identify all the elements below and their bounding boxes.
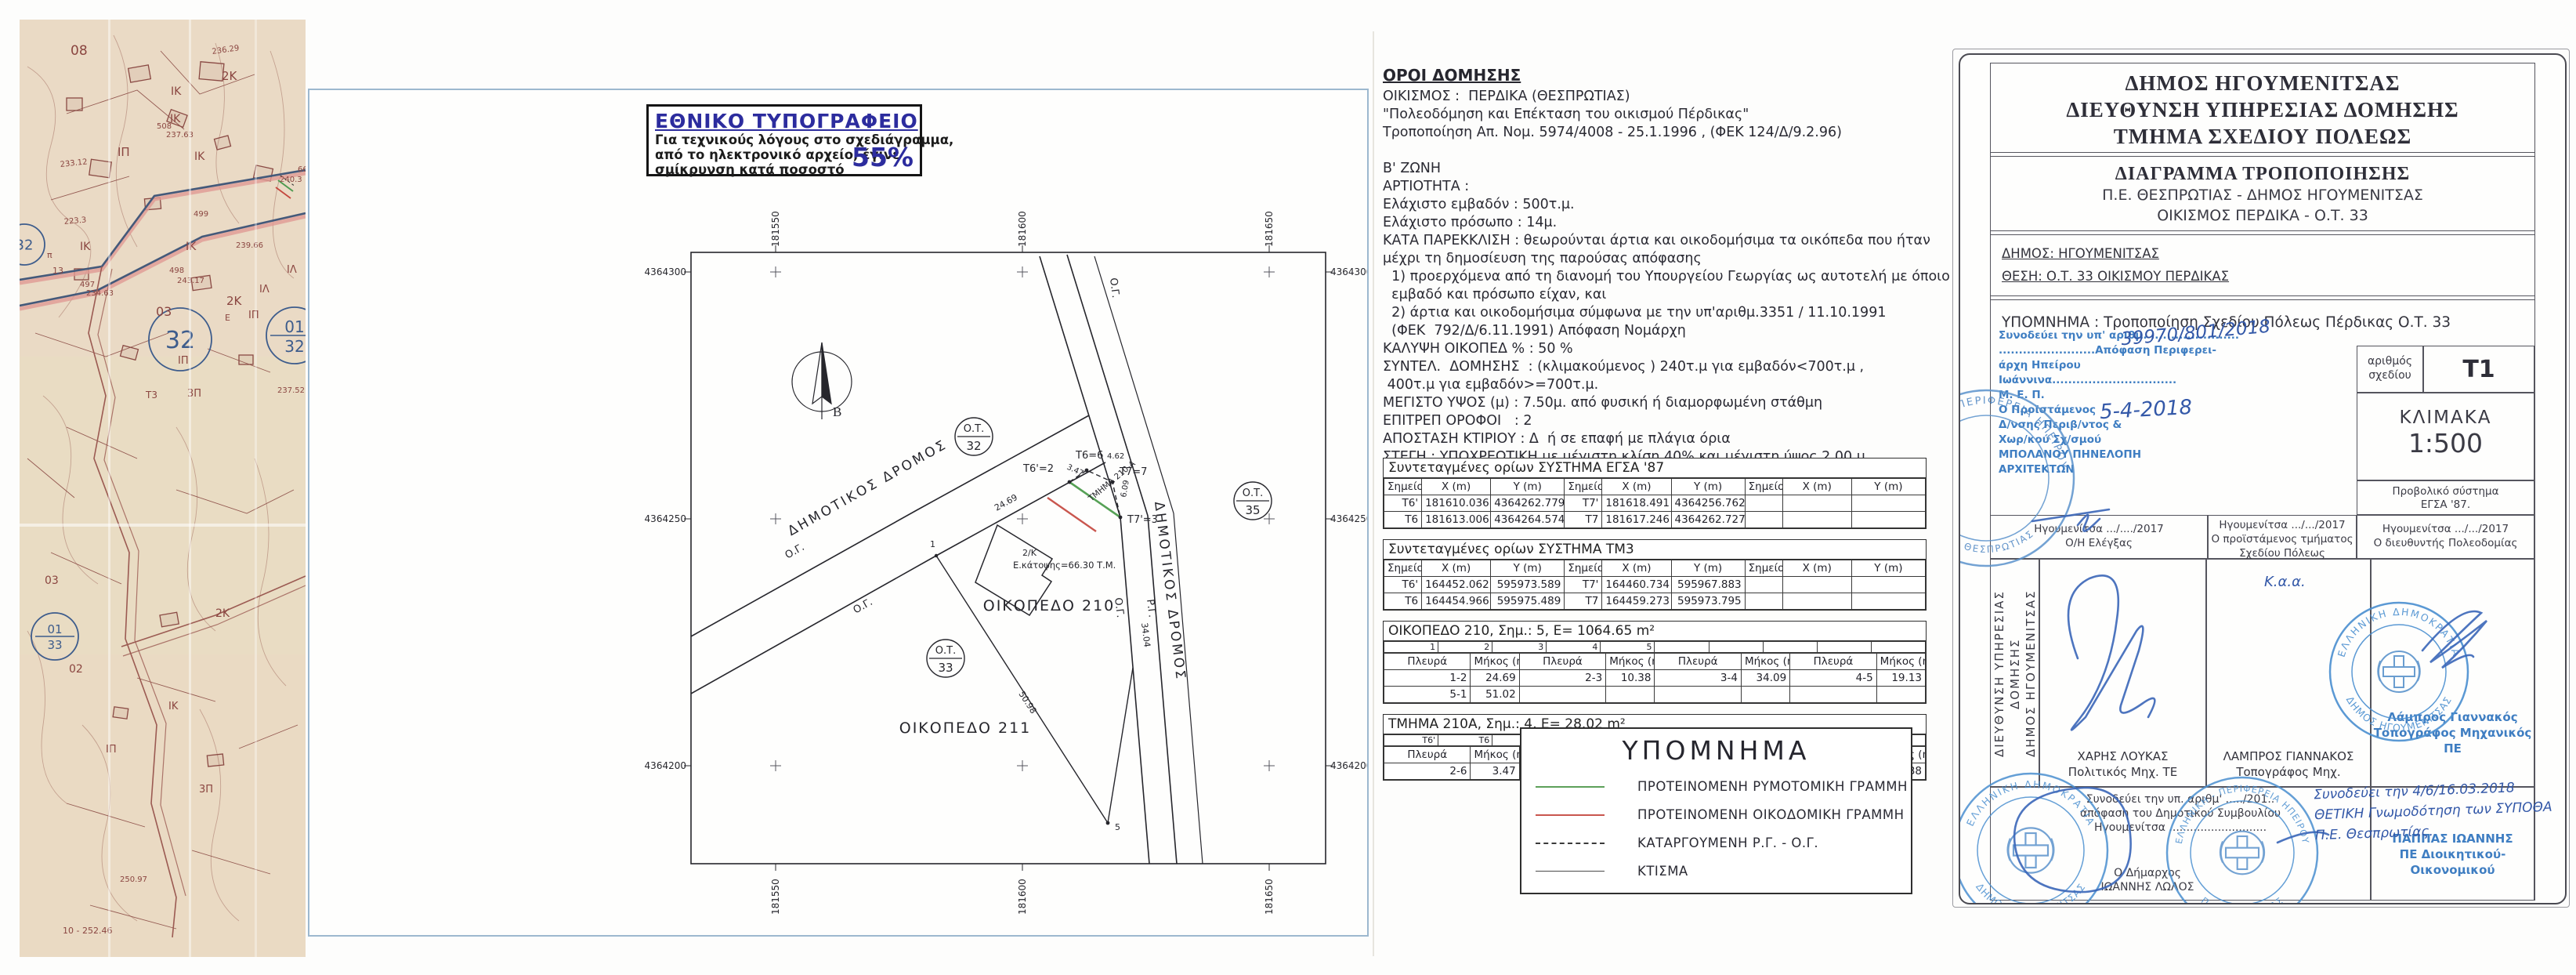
map-label: ΙΠ bbox=[118, 145, 130, 159]
ot-label: Ο.Τ. bbox=[1243, 487, 1263, 499]
survey-label: 3.47 bbox=[1065, 463, 1085, 478]
column-header: Πλευρά bbox=[1519, 654, 1605, 670]
axis-label-left: 4364250 bbox=[645, 513, 686, 524]
scale-label: ΚΛΙΜΑΚΑ bbox=[2357, 393, 2534, 428]
building-terms-line: ΑΠΟΣΤΑΣΗ ΚΤΙΡΙΟΥ : Δ ή σε επαφή με πλάγι… bbox=[1383, 430, 1841, 448]
mep-stamp-line: Χωρ/κού Σχ/σμού bbox=[1999, 433, 2351, 448]
table-cell: 3-4 bbox=[1655, 670, 1741, 687]
map-label: 13 bbox=[52, 266, 63, 276]
mep-stamp-line: ........................Απόφαση Περιφερε… bbox=[1999, 343, 2351, 358]
survey-label: 24.69 bbox=[993, 492, 1019, 513]
survey-label: 6.09 bbox=[1120, 480, 1131, 498]
map-label: ΙΠ bbox=[248, 310, 259, 321]
table-cell bbox=[1790, 687, 1876, 703]
date-line: Ο προϊστάμενος τμήματος bbox=[2209, 532, 2356, 546]
scan-table: ΟΙΚΟΠΕΔΟ 210, Σημ.: 5, E= 1064.65 m²1234… bbox=[1383, 621, 1927, 704]
title-block-inner: ΔΗΜΟΣ ΗΓΟΥΜΕΝΙΤΣΑΣΔΙΕΥΘΥΝΣΗ ΥΠΗΡΕΣΙΑΣ ΔΟ… bbox=[1990, 63, 2535, 901]
survey-label: 4.62 bbox=[1107, 452, 1124, 461]
table-cell: 181618.491 bbox=[1602, 495, 1671, 512]
signer-line: Τοπογράφος Μηχ. bbox=[2207, 764, 2370, 780]
point-cell bbox=[1817, 642, 1871, 653]
table-cell: Τ7 bbox=[1565, 593, 1602, 610]
map-label: 498 bbox=[169, 266, 184, 275]
map-label: ΙΠ bbox=[106, 744, 117, 756]
scale-value: 1:500 bbox=[2357, 428, 2534, 459]
building-terms-line: ΚΑΤΑ ΠΑΡΕΚΚΛΙΣΗ : θεωρούνται άρτια και ο… bbox=[1383, 232, 1841, 250]
map-label: 239.66 bbox=[236, 241, 263, 250]
building-terms-line: μέχρι τη δημοσίευση της παρούσας απόφαση… bbox=[1383, 250, 1841, 268]
building-terms-line: 400τ.μ για εμβαδόν>=700τ.μ. bbox=[1383, 376, 1841, 394]
table-cell: 4-5 bbox=[1790, 670, 1876, 687]
survey-label: ΔΗΜΟΤΙΚΟΣ ΔΡΟΜΟΣ bbox=[785, 437, 950, 539]
points-row: 12345 bbox=[1384, 641, 1926, 653]
table-cell: Τ6' bbox=[1384, 577, 1422, 593]
table-grid: ΣημείοX (m)Y (m)ΣημείοX (m)Y (m)ΣημείοX … bbox=[1384, 560, 1926, 610]
table-cell: 24.69 bbox=[1471, 670, 1519, 687]
axis-label-bottom: 181600 bbox=[1017, 879, 1028, 915]
stamp-signer-line: ΠΕ Διοικητικού-Οικονομικού bbox=[2372, 846, 2534, 878]
notice-title: ΕΘΝΙΚΟ ΤΥΠΟΓΡΑΦΕΙΟ bbox=[655, 110, 914, 132]
column-header: Μήκος (m) bbox=[1606, 654, 1655, 670]
location-block: ΔΗΜΟΣ: ΗΓΟΥΜΕΝΙΤΣΑΣΘΕΣΗ: Ο.Τ. 33 ΟΙΚΙΣΜΟ… bbox=[2002, 242, 2524, 288]
map-label: 2Κ bbox=[215, 607, 230, 620]
column-header: Μήκος (m) bbox=[1741, 654, 1789, 670]
legend-label: ΚΑΤΑΡΓΟΥΜΕΝΗ Ρ.Γ. - Ο.Γ. bbox=[1637, 835, 1818, 850]
point-cell bbox=[1655, 642, 1709, 653]
survey-label: Ο.Γ. bbox=[783, 542, 807, 562]
date-cell-head-of-section: Ηγουμενίτσα .../.../2017Ο προϊστάμενος τ… bbox=[2209, 516, 2356, 560]
legend-items: ΠΡΟΤΕΙΝΟΜΕΝΗ ΡΥΜΟΤΟΜΙΚΗ ΓΡΑΜΜΗΠΡΟΤΕΙΝΟΜΕ… bbox=[1521, 779, 1911, 879]
scan-table: Συντεταγμένες ορίων ΣΥΣΤΗΜΑ ΤΜ3ΣημείοX (… bbox=[1383, 539, 1927, 611]
mep-stamp-line: ΑΡΧΙΤΕΚΤΩΝ bbox=[1999, 462, 2351, 477]
table-cell: 595973.589 bbox=[1491, 577, 1565, 593]
mep-stamp-line: ΜΠΟΛΑΝΟΥ ΠΗΝΕΛΟΠΗ bbox=[1999, 448, 2351, 462]
column-header: Y (m) bbox=[1491, 560, 1565, 577]
divider bbox=[1991, 230, 2534, 235]
legend-label: ΚΤΙΣΜΑ bbox=[1637, 864, 1688, 879]
diagram-subtitle-line: ΟΙΚΙΣΜΟΣ ΠΕΡΔΙΚΑ - Ο.Τ. 33 bbox=[1991, 205, 2534, 226]
table-cell: Τ7' bbox=[1565, 495, 1602, 512]
map-label: ΙΚ bbox=[186, 241, 197, 253]
north-compass-icon bbox=[792, 343, 852, 419]
column-header: Σημείο bbox=[1745, 479, 1782, 495]
building-terms-line: Τροποποίηση Απ. Νομ. 5974/4008 - 25.1.19… bbox=[1383, 124, 1841, 142]
table-row: Τ6181613.0064364264.574Τ7181617.24643642… bbox=[1384, 512, 1926, 528]
title-block: ΔΗΜΟΣ ΗΓΟΥΜΕΝΙΤΣΑΣΔΙΕΥΘΥΝΣΗ ΥΠΗΡΕΣΙΑΣ ΔΟ… bbox=[1959, 53, 2567, 904]
table-row: Τ6'164452.062595973.589Τ7'164460.7345959… bbox=[1384, 577, 1926, 593]
date-line: Ηγουμενίτσα .../..../2017 bbox=[1991, 522, 2207, 536]
mep-stamp-line: άρχη Ηπείρου bbox=[1999, 358, 2351, 373]
table-title: ΟΙΚΟΠΕΔΟ 210, Σημ.: 5, E= 1064.65 m² bbox=[1384, 622, 1926, 641]
date-cell-checker: Ηγουμενίτσα .../..../2017Ο/Η Ελέγξας bbox=[1991, 516, 2207, 550]
legend-line-sample-red bbox=[1536, 814, 1605, 816]
column-header: Y (m) bbox=[1491, 479, 1565, 495]
legend-line-sample-dashed bbox=[1536, 843, 1605, 844]
survey-label: ΟΙΚΟΠΕΔΟ 211 bbox=[899, 719, 1032, 737]
survey-label: Ρ.Γ. bbox=[1144, 599, 1158, 618]
survey-label: ΔΗΜΟΤΙΚΟΣ ΔΡΟΜΟΣ bbox=[1151, 501, 1189, 682]
surveyor-stamp-name: Λάμπρος ΓιαννακόςΤοπογράφος Μηχανικός ΠΕ bbox=[2372, 709, 2534, 756]
column-header: X (m) bbox=[1782, 479, 1851, 495]
ot-label: Ο.Τ. bbox=[935, 645, 956, 657]
old-cadastral-map: 320132013332 082Κ236.29ΙΚΙΚΙΠΙΚ508237.63… bbox=[20, 20, 306, 957]
column-header: Y (m) bbox=[1671, 479, 1745, 495]
column-header: Μήκος (m) bbox=[1471, 654, 1519, 670]
table-cell bbox=[1851, 577, 1925, 593]
survey-drawing-panel: Β Ο.Τ.32Ο.Τ.33Ο.Τ.35 1815501816001816501… bbox=[308, 89, 1369, 937]
date-line: Ηγουμενίτσα .../.../2017 bbox=[2209, 518, 2356, 532]
building-terms-line: ΕΠΙΤΡΕΠ ΟΡΟΦΟΙ : 2 bbox=[1383, 412, 1841, 430]
stamp-signer-line: Λάμπρος Γιαννακός bbox=[2372, 709, 2534, 725]
map-label: 660 bbox=[298, 165, 306, 174]
map-circle-number: 01 bbox=[47, 622, 62, 636]
legend: ΥΠΟΜΝΗΜΑ ΠΡΟΤΕΙΝΟΜΕΝΗ ΡΥΜΟΤΟΜΙΚΗ ΓΡΑΜΜΗΠ… bbox=[1520, 727, 1912, 894]
council-line: Ηγουμενίτσα ............................ bbox=[1991, 821, 2370, 835]
legend-item: ΠΡΟΤΕΙΝΟΜΕΝΗ ΡΥΜΟΤΟΜΙΚΗ ΓΡΑΜΜΗ bbox=[1536, 779, 1911, 794]
column-header: Μήκος (m) bbox=[1471, 747, 1519, 763]
axis-label-left: 4364200 bbox=[645, 760, 686, 771]
mep-stamp-line: Ιωάννινα............................... bbox=[1999, 373, 2351, 388]
plan-number-label: αριθμόςσχεδίου bbox=[2357, 346, 2422, 382]
ot-number: 33 bbox=[938, 661, 953, 675]
mayor-line: ΙΩΑΝΝΗΣ ΛΩΛΟΣ bbox=[2061, 880, 2234, 894]
signer-civil-engineer: ΧΑΡΗΣ ΛΟΥΚΑΣΠολιτικός Μηχ. ΤΕ bbox=[2040, 748, 2205, 780]
table-cell: 5-1 bbox=[1384, 687, 1471, 703]
table-cell: 2-3 bbox=[1519, 670, 1605, 687]
building-terms-line: ΣΥΝΤΕΛ. ΔΟΜΗΣΗΣ : (κλιμακούμενος ) 240τ.… bbox=[1383, 358, 1841, 376]
legend-item: ΠΡΟΤΕΙΝΟΜΕΝΗ ΟΙΚΟΔΟΜΙΚΗ ΓΡΑΜΜΗ bbox=[1536, 807, 1911, 822]
survey-label: ΟΙΚΟΠΕΔΟ 210 bbox=[983, 597, 1116, 614]
map-label: 497 bbox=[80, 281, 95, 289]
survey-label: Ο.Γ. bbox=[852, 596, 875, 617]
date-line: Ο διευθυντής Πολεοδομίας bbox=[2357, 536, 2534, 550]
projection-line: Προβολικό σύστημα bbox=[2357, 485, 2534, 498]
roads bbox=[691, 255, 1203, 864]
map-label: ΙΚ bbox=[194, 150, 205, 163]
survey-drawing: Β Ο.Τ.32Ο.Τ.33Ο.Τ.35 1815501816001816501… bbox=[309, 90, 1367, 935]
legend-label: ΠΡΟΤΕΙΝΟΜΕΝΗ ΡΥΜΟΤΟΜΙΚΗ ΓΡΑΜΜΗ bbox=[1637, 779, 1908, 794]
mayor-line: Ο Δήμαρχος bbox=[2061, 866, 2234, 880]
diagram-title: ΔΙΑΓΡΑΜΜΑ ΤΡΟΠΟΠΟΙΗΣΗΣ bbox=[1991, 164, 2534, 185]
point-cell: 2 bbox=[1438, 642, 1492, 653]
axis-label-right: 4364200 bbox=[1330, 760, 1367, 771]
building-terms-line: "Πολεοδόμηση και Επέκταση του οικισμού Π… bbox=[1383, 106, 1841, 124]
map-label: 02 bbox=[69, 663, 83, 676]
reduction-percent: 55% bbox=[852, 142, 914, 172]
table-cell bbox=[1519, 687, 1605, 703]
map-label: 508 bbox=[157, 122, 172, 131]
map-circle-number: 01 bbox=[284, 317, 304, 336]
ot-label: Ο.Τ. bbox=[964, 423, 984, 435]
table-grid: ΠλευράΜήκος (m)ΠλευράΜήκος (m)ΠλευράΜήκο… bbox=[1384, 653, 1926, 703]
building-terms-line: ΜΕΓΙΣΤΟ ΥΨΟΣ (μ) : 7.50μ. από φυσική ή δ… bbox=[1383, 394, 1841, 412]
column-header: Πλευρά bbox=[1384, 654, 1471, 670]
map-label: 237.52 bbox=[277, 386, 305, 395]
agency-header-line: ΔΗΜΟΣ ΗΓΟΥΜΕΝΙΤΣΑΣ bbox=[1991, 70, 2534, 96]
table-row: 1-224.692-310.383-434.094-519.13 bbox=[1384, 670, 1926, 687]
column-header: Σημείο bbox=[1745, 560, 1782, 577]
map-label: 03 bbox=[156, 304, 172, 319]
table-row: Τ6'181610.0364364262.779Τ7'181618.491436… bbox=[1384, 495, 1926, 512]
signer-surveyor: ΛΑΜΠΡΟΣ ΓΙΑΝΝΑΚΟΣΤοπογράφος Μηχ. bbox=[2207, 748, 2370, 780]
table-cell: 10.38 bbox=[1606, 670, 1655, 687]
column-header: X (m) bbox=[1602, 560, 1671, 577]
table-cell: 34.09 bbox=[1741, 670, 1789, 687]
table-title: Συντεταγμένες ορίων ΣΥΣΤΗΜΑ ΕΓΣΑ '87 bbox=[1384, 459, 1926, 478]
building-terms-line: ΚΑΛΥΨΗ ΟΙΚΟΠΕΔ % : 50 % bbox=[1383, 340, 1841, 358]
point-cell: 4 bbox=[1547, 642, 1601, 653]
scan-table: Συντεταγμένες ορίων ΣΥΣΤΗΜΑ ΕΓΣΑ '87Σημε… bbox=[1383, 458, 1927, 529]
table-cell: Τ6 bbox=[1384, 512, 1422, 528]
survey-label: 34.04 bbox=[1139, 622, 1152, 648]
axis-label-bottom: 181650 bbox=[1264, 879, 1275, 915]
table-cell bbox=[1782, 593, 1851, 610]
building-terms-line: Ελάχιστο εμβαδόν : 500τ.μ. bbox=[1383, 196, 1841, 214]
map-label: Τ3 bbox=[145, 390, 157, 401]
table-cell: Τ6 bbox=[1384, 593, 1422, 610]
table-cell: Τ7 bbox=[1565, 512, 1602, 528]
building-terms-line: ΑΡΤΙΟΤΗΤΑ : bbox=[1383, 178, 1841, 196]
table-cell: 4364262.727 bbox=[1671, 512, 1745, 528]
map-label: 499 bbox=[194, 210, 208, 219]
column-header: Πλευρά bbox=[1790, 654, 1876, 670]
map-circle-number: 32 bbox=[284, 337, 304, 356]
building-terms-title: ΟΡΟΙ ΔΟΜΗΣΗΣ bbox=[1383, 66, 1841, 85]
agency-header-line: ΔΙΕΥΘΥΝΣΗ ΥΠΗΡΕΣΙΑΣ ΔΟΜΗΣΗΣ bbox=[1991, 96, 2534, 123]
axis-label-top: 181550 bbox=[770, 211, 781, 247]
axis-labels: 1815501816001816501815501816001816504364… bbox=[645, 211, 1367, 915]
table-cell: 4364256.762 bbox=[1671, 495, 1745, 512]
legend-title: ΥΠΟΜΝΗΜΑ bbox=[1521, 735, 1911, 766]
building-terms: ΟΡΟΙ ΔΟΜΗΣΗΣ ΟΙΚΙΣΜΟΣ : ΠΕΡΔΙΚΑ (ΘΕΣΠΡΩΤ… bbox=[1383, 66, 1841, 466]
table-cell: 164454.966 bbox=[1422, 593, 1491, 610]
column-header: Σημείο bbox=[1565, 479, 1602, 495]
building-terms-line: ΟΙΚΙΣΜΟΣ : ΠΕΡΔΙΚΑ (ΘΕΣΠΡΩΤΙΑΣ) bbox=[1383, 88, 1841, 106]
ot-number: 35 bbox=[1245, 503, 1260, 517]
map-label: Ε bbox=[225, 313, 230, 323]
survey-points bbox=[935, 469, 1123, 825]
building-terms-line: Β' ΖΩΝΗ bbox=[1383, 160, 1841, 178]
table-cell bbox=[1606, 687, 1655, 703]
legend-item: ΚΑΤΑΡΓΟΥΜΕΝΗ Ρ.Γ. - Ο.Γ. bbox=[1536, 835, 1911, 850]
survey-label: 5 bbox=[1115, 822, 1120, 832]
map-circle-number: 32 bbox=[20, 237, 33, 253]
table-cell: 595967.883 bbox=[1671, 577, 1745, 593]
grid-ticks bbox=[684, 245, 1333, 871]
survey-label: Τ6=6 bbox=[1075, 450, 1103, 462]
hw-kaa: Κ.α.α. bbox=[2264, 574, 2306, 590]
map-label: ΙΛ bbox=[259, 284, 270, 295]
legend-label: ΠΡΟΤΕΙΝΟΜΕΝΗ ΟΙΚΟΔΟΜΙΚΗ ΓΡΑΜΜΗ bbox=[1637, 807, 1905, 822]
diagram-subtitle-line: Π.Ε. ΘΕΣΠΡΩΤΙΑΣ - ΔΗΜΟΣ ΗΓΟΥΜΕΝΙΤΣΑΣ bbox=[1991, 185, 2534, 205]
hw-opinion: Συνοδεύει την 4/6/16.03.2018ΘΕΤΙΚΗ Γνωμο… bbox=[2314, 777, 2553, 846]
axis-label-top: 181600 bbox=[1017, 211, 1028, 247]
agency-header: ΔΗΜΟΣ ΗΓΟΥΜΕΝΙΤΣΑΣΔΙΕΥΘΥΝΣΗ ΥΠΗΡΕΣΙΑΣ ΔΟ… bbox=[1991, 70, 2534, 150]
divider bbox=[1991, 295, 2534, 300]
column-header: Σημείο bbox=[1384, 479, 1422, 495]
map-label: 03 bbox=[45, 574, 59, 587]
vertical-department-label: ΔΙΕΥΘΥΝΣΗ ΥΠΗΡΕΣΙΑΣ ΔΟΜΗΣΗΣΔΗΜΟΣ ΗΓΟΥΜΕΝ… bbox=[1992, 566, 2039, 781]
scan-fold-line bbox=[1373, 31, 1374, 956]
proposed-building-line bbox=[1047, 498, 1096, 531]
table-cell bbox=[1745, 577, 1782, 593]
map-label: ΙΚ bbox=[80, 241, 91, 253]
signer-line: ΧΑΡΗΣ ΛΟΥΚΑΣ bbox=[2040, 748, 2205, 764]
table-cell: 2-6 bbox=[1384, 763, 1471, 780]
ot-block-circle: Ο.Τ.35 bbox=[1234, 482, 1272, 520]
table-row: Τ6164454.966595975.489Τ7164459.273595973… bbox=[1384, 593, 1926, 610]
map-label: ΙΚ bbox=[168, 701, 179, 712]
column-header: Y (m) bbox=[1671, 560, 1745, 577]
location-line: ΘΕΣΗ: Ο.Τ. 33 ΟΙΚΙΣΜΟΥ ΠΕΡΔΙΚΑΣ bbox=[2002, 265, 2524, 288]
table-cell: 181610.036 bbox=[1422, 495, 1491, 512]
axis-label-top: 181650 bbox=[1264, 211, 1275, 247]
date-cell-director: Ηγουμενίτσα .../.../2017Ο διευθυντής Πολ… bbox=[2357, 516, 2534, 550]
council-line: απόφαση του Δημοτικού Συμβουλίου bbox=[1991, 806, 2370, 821]
side-label-line: ΔΙΕΥΘΥΝΣΗ ΥΠΗΡΕΣΙΑΣ ΔΟΜΗΣΗΣ bbox=[1992, 566, 2023, 781]
map-label: 2Κ bbox=[222, 69, 238, 83]
table-cell bbox=[1851, 593, 1925, 610]
table-cell: Τ7' bbox=[1565, 577, 1602, 593]
point-cell bbox=[1709, 642, 1763, 653]
table-cell: 164452.062 bbox=[1422, 577, 1491, 593]
plan-number-label-line: αριθμός bbox=[2357, 354, 2422, 368]
ot-block-circle: Ο.Τ.32 bbox=[955, 418, 993, 455]
table-cell: 19.13 bbox=[1876, 670, 1925, 687]
building-terms-line: (ΦΕΚ 792/Δ/6.11.1991) Απόφαση Νομάρχη bbox=[1383, 322, 1841, 340]
table-row: 5-151.02 bbox=[1384, 687, 1926, 703]
ot-block-circle: Ο.Τ.33 bbox=[927, 640, 964, 677]
point-cell: Τ6' bbox=[1384, 735, 1438, 746]
column-header: Πλευρά bbox=[1655, 654, 1741, 670]
signer-line: ΛΑΜΠΡΟΣ ΓΙΑΝΝΑΚΟΣ bbox=[2207, 748, 2370, 764]
column-header: X (m) bbox=[1602, 479, 1671, 495]
map-label: π bbox=[47, 250, 52, 260]
column-header: Σημείο bbox=[1565, 560, 1602, 577]
hw-approval-date: 5-4-2018 bbox=[2099, 396, 2192, 424]
axis-label-right: 4364300 bbox=[1330, 266, 1367, 277]
legend-line-sample-solid bbox=[1536, 871, 1605, 872]
survey-label: Ε.κάτοψης=66.30 Τ.Μ. bbox=[1013, 560, 1116, 571]
table-grid: ΣημείοX (m)Y (m)ΣημείοX (m)Y (m)ΣημείοX … bbox=[1384, 478, 1926, 528]
column-header: X (m) bbox=[1422, 560, 1491, 577]
projection-system: Προβολικό σύστημαΕΓΣΑ '87. bbox=[2357, 481, 2534, 512]
map-tint bbox=[20, 654, 306, 957]
table-cell: 3.47 bbox=[1471, 763, 1519, 780]
plan-number-label-line: σχεδίου bbox=[2357, 368, 2422, 382]
map-label: 3Π bbox=[199, 784, 213, 796]
map-label: ΙΛ bbox=[287, 264, 297, 276]
diagram-subtitle: Π.Ε. ΘΕΣΠΡΩΤΙΑΣ - ΔΗΜΟΣ ΗΓΟΥΜΕΝΙΤΣΑΣΟΙΚΙ… bbox=[1991, 185, 2534, 226]
agency-header-line: ΤΜΗΜΑ ΣΧΕΔΙΟΥ ΠΟΛΕΩΣ bbox=[1991, 123, 2534, 150]
date-line: Ηγουμενίτσα .../.../2017 bbox=[2357, 522, 2534, 536]
map-circle-number: 33 bbox=[47, 638, 62, 652]
divider bbox=[1991, 152, 2534, 157]
mayor-block: Ο ΔήμαρχοςΙΩΑΝΝΗΣ ΛΩΛΟΣ bbox=[2061, 866, 2234, 894]
table-cell: 595973.795 bbox=[1671, 593, 1745, 610]
table-cell bbox=[1741, 687, 1789, 703]
national-printing-office-notice: ΕΘΝΙΚΟ ΤΥΠΟΓΡΑΦΕΙΟ Για τεχνικούς λόγους … bbox=[646, 104, 922, 176]
side-label-line: ΔΗΜΟΣ ΗΓΟΥΜΕΝΙΤΣΑΣ bbox=[2023, 566, 2039, 781]
map-label: 10 - 252.46 bbox=[63, 926, 112, 936]
table-cell: 4364264.574 bbox=[1491, 512, 1565, 528]
location-line: ΔΗΜΟΣ: ΗΓΟΥΜΕΝΙΤΣΑΣ bbox=[2002, 242, 2524, 265]
table-cell bbox=[1745, 593, 1782, 610]
stamp-signer-line: Τοπογράφος Μηχανικός ΠΕ bbox=[2372, 725, 2534, 756]
table-cell: 181613.006 bbox=[1422, 512, 1491, 528]
building-terms-line: Ελάχιστο πρόσωπο : 14μ. bbox=[1383, 214, 1841, 232]
building-terms-line: 1) προερχόμενα από τη διανομή του Υπουργ… bbox=[1383, 268, 1841, 286]
survey-label: 1 bbox=[930, 539, 935, 549]
building-terms-line: 2) άρτια και οικοδομήσιμα σύμφωνα με την… bbox=[1383, 304, 1841, 322]
survey-label: Τ6'=2 bbox=[1022, 463, 1054, 475]
table-cell bbox=[1745, 512, 1782, 528]
building-terms-line bbox=[1383, 142, 1841, 160]
plan-number: Τ1 bbox=[2424, 346, 2534, 383]
map-label: 250.97 bbox=[120, 875, 147, 884]
column-header: Μήκος (m) bbox=[1876, 654, 1925, 670]
table-cell bbox=[1851, 512, 1925, 528]
legend-item: ΚΤΙΣΜΑ bbox=[1536, 864, 1911, 879]
axis-label-bottom: 181550 bbox=[770, 879, 781, 915]
building-terms-line: εμβαδό και πρόσωπο είχαν, και bbox=[1383, 286, 1841, 304]
survey-label: 50.98 bbox=[1016, 690, 1038, 716]
table-cell: 164459.273 bbox=[1602, 593, 1671, 610]
map-label: ΙΠ bbox=[178, 355, 189, 367]
point-cell bbox=[1763, 642, 1817, 653]
table-cell: 51.02 bbox=[1471, 687, 1519, 703]
column-header: X (m) bbox=[1422, 479, 1491, 495]
projection-line: ΕΓΣΑ '87. bbox=[2357, 498, 2534, 512]
map-label: ΙΚ bbox=[170, 113, 181, 125]
axis-label-right: 4364250 bbox=[1330, 513, 1367, 524]
signer-line: Πολιτικός Μηχ. ΤΕ bbox=[2040, 764, 2205, 780]
point-cell: 5 bbox=[1601, 642, 1655, 653]
column-header: Σημείο bbox=[1384, 560, 1422, 577]
column-header: Πλευρά bbox=[1384, 747, 1471, 763]
survey-label: 2/Κ bbox=[1022, 548, 1037, 558]
table-cell: 595975.489 bbox=[1491, 593, 1565, 610]
point-cell: 1 bbox=[1384, 642, 1438, 653]
point-cell: 3 bbox=[1492, 642, 1547, 653]
point-cell: Τ6 bbox=[1438, 735, 1492, 746]
map-label: ΙΚ bbox=[171, 85, 182, 98]
axis-label-left: 4364300 bbox=[645, 266, 686, 277]
date-line: Ο/Η Ελέγξας bbox=[1991, 536, 2207, 550]
column-header: X (m) bbox=[1782, 560, 1851, 577]
north-letter: Β bbox=[833, 404, 841, 419]
table-cell bbox=[1782, 512, 1851, 528]
scanned-planning-document: 320132013332 082Κ236.29ΙΚΙΚΙΠΙΚ508237.63… bbox=[0, 0, 2576, 975]
map-label: 240.3 bbox=[280, 176, 302, 184]
legend-line-sample-green bbox=[1536, 786, 1605, 788]
building-terms-lines: ΟΙΚΙΣΜΟΣ : ΠΕΡΔΙΚΑ (ΘΕΣΠΡΩΤΙΑΣ)"Πολεοδόμ… bbox=[1383, 88, 1841, 466]
table-title: Συντεταγμένες ορίων ΣΥΣΤΗΜΑ ΤΜ3 bbox=[1384, 540, 1926, 560]
table-cell: Τ6' bbox=[1384, 495, 1422, 512]
table-cell: 164460.734 bbox=[1602, 577, 1671, 593]
parcel-boundaries bbox=[936, 556, 1133, 823]
ot-number: 32 bbox=[966, 439, 981, 453]
survey-label: Ο.Γ. bbox=[1107, 277, 1121, 299]
table-cell bbox=[1876, 687, 1925, 703]
map-label: 2Κ bbox=[226, 294, 243, 308]
table-cell bbox=[1655, 687, 1741, 703]
table-cell bbox=[1851, 495, 1925, 512]
table-cell: 1-2 bbox=[1384, 670, 1471, 687]
map-label: 08 bbox=[71, 43, 88, 59]
table-cell: 4364262.779 bbox=[1491, 495, 1565, 512]
column-header: Y (m) bbox=[1851, 479, 1925, 495]
